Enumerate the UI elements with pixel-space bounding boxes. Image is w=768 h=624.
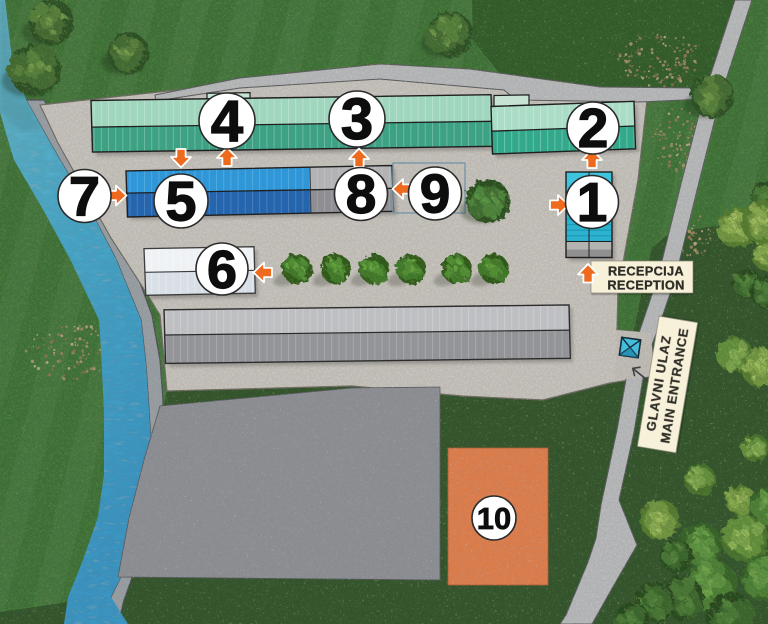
svg-text:RECEPTION: RECEPTION [607, 278, 684, 293]
svg-text:4: 4 [211, 89, 243, 154]
svg-text:1: 1 [577, 171, 608, 233]
svg-text:RECEPCIJA: RECEPCIJA [608, 264, 684, 279]
svg-text:9: 9 [420, 163, 451, 225]
svg-text:7: 7 [69, 165, 100, 228]
svg-text:2: 2 [578, 97, 609, 159]
svg-text:3: 3 [341, 87, 373, 152]
svg-text:8: 8 [346, 163, 377, 225]
svg-text:10: 10 [477, 501, 511, 536]
svg-text:5: 5 [165, 170, 196, 233]
svg-text:6: 6 [207, 240, 237, 300]
